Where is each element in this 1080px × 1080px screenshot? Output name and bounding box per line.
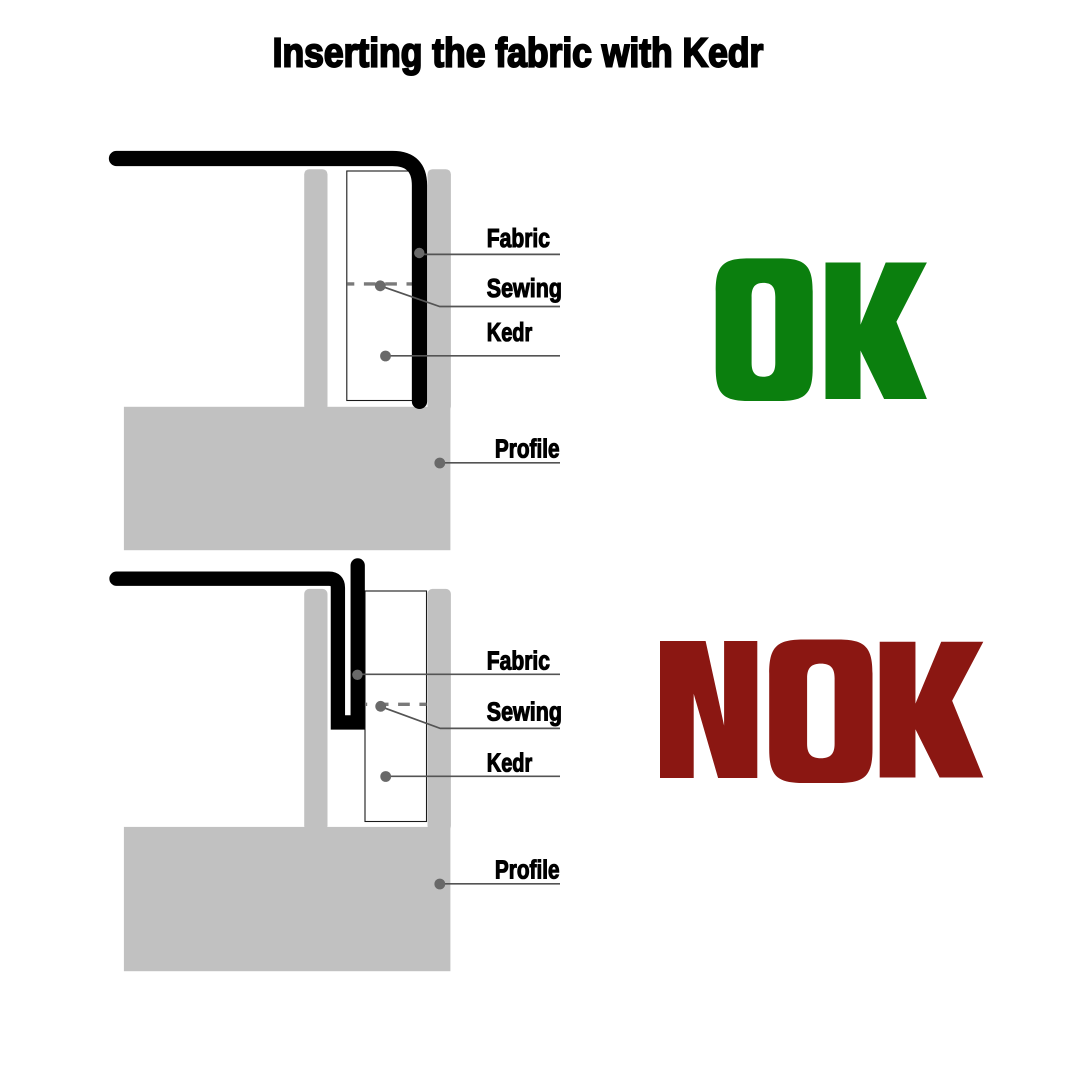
svg-text:Fabric: Fabric [487,225,550,254]
svg-text:Kedr: Kedr [487,748,532,777]
svg-text:Sewing: Sewing [487,698,562,727]
svg-text:Profile: Profile [495,434,560,463]
svg-text:Inserting the fabric with Kedr: Inserting the fabric with Kedr [273,30,764,76]
svg-text:Fabric: Fabric [487,648,550,677]
svg-text:Kedr: Kedr [487,318,532,347]
svg-text:Sewing: Sewing [487,274,562,303]
svg-text:Profile: Profile [495,855,560,884]
